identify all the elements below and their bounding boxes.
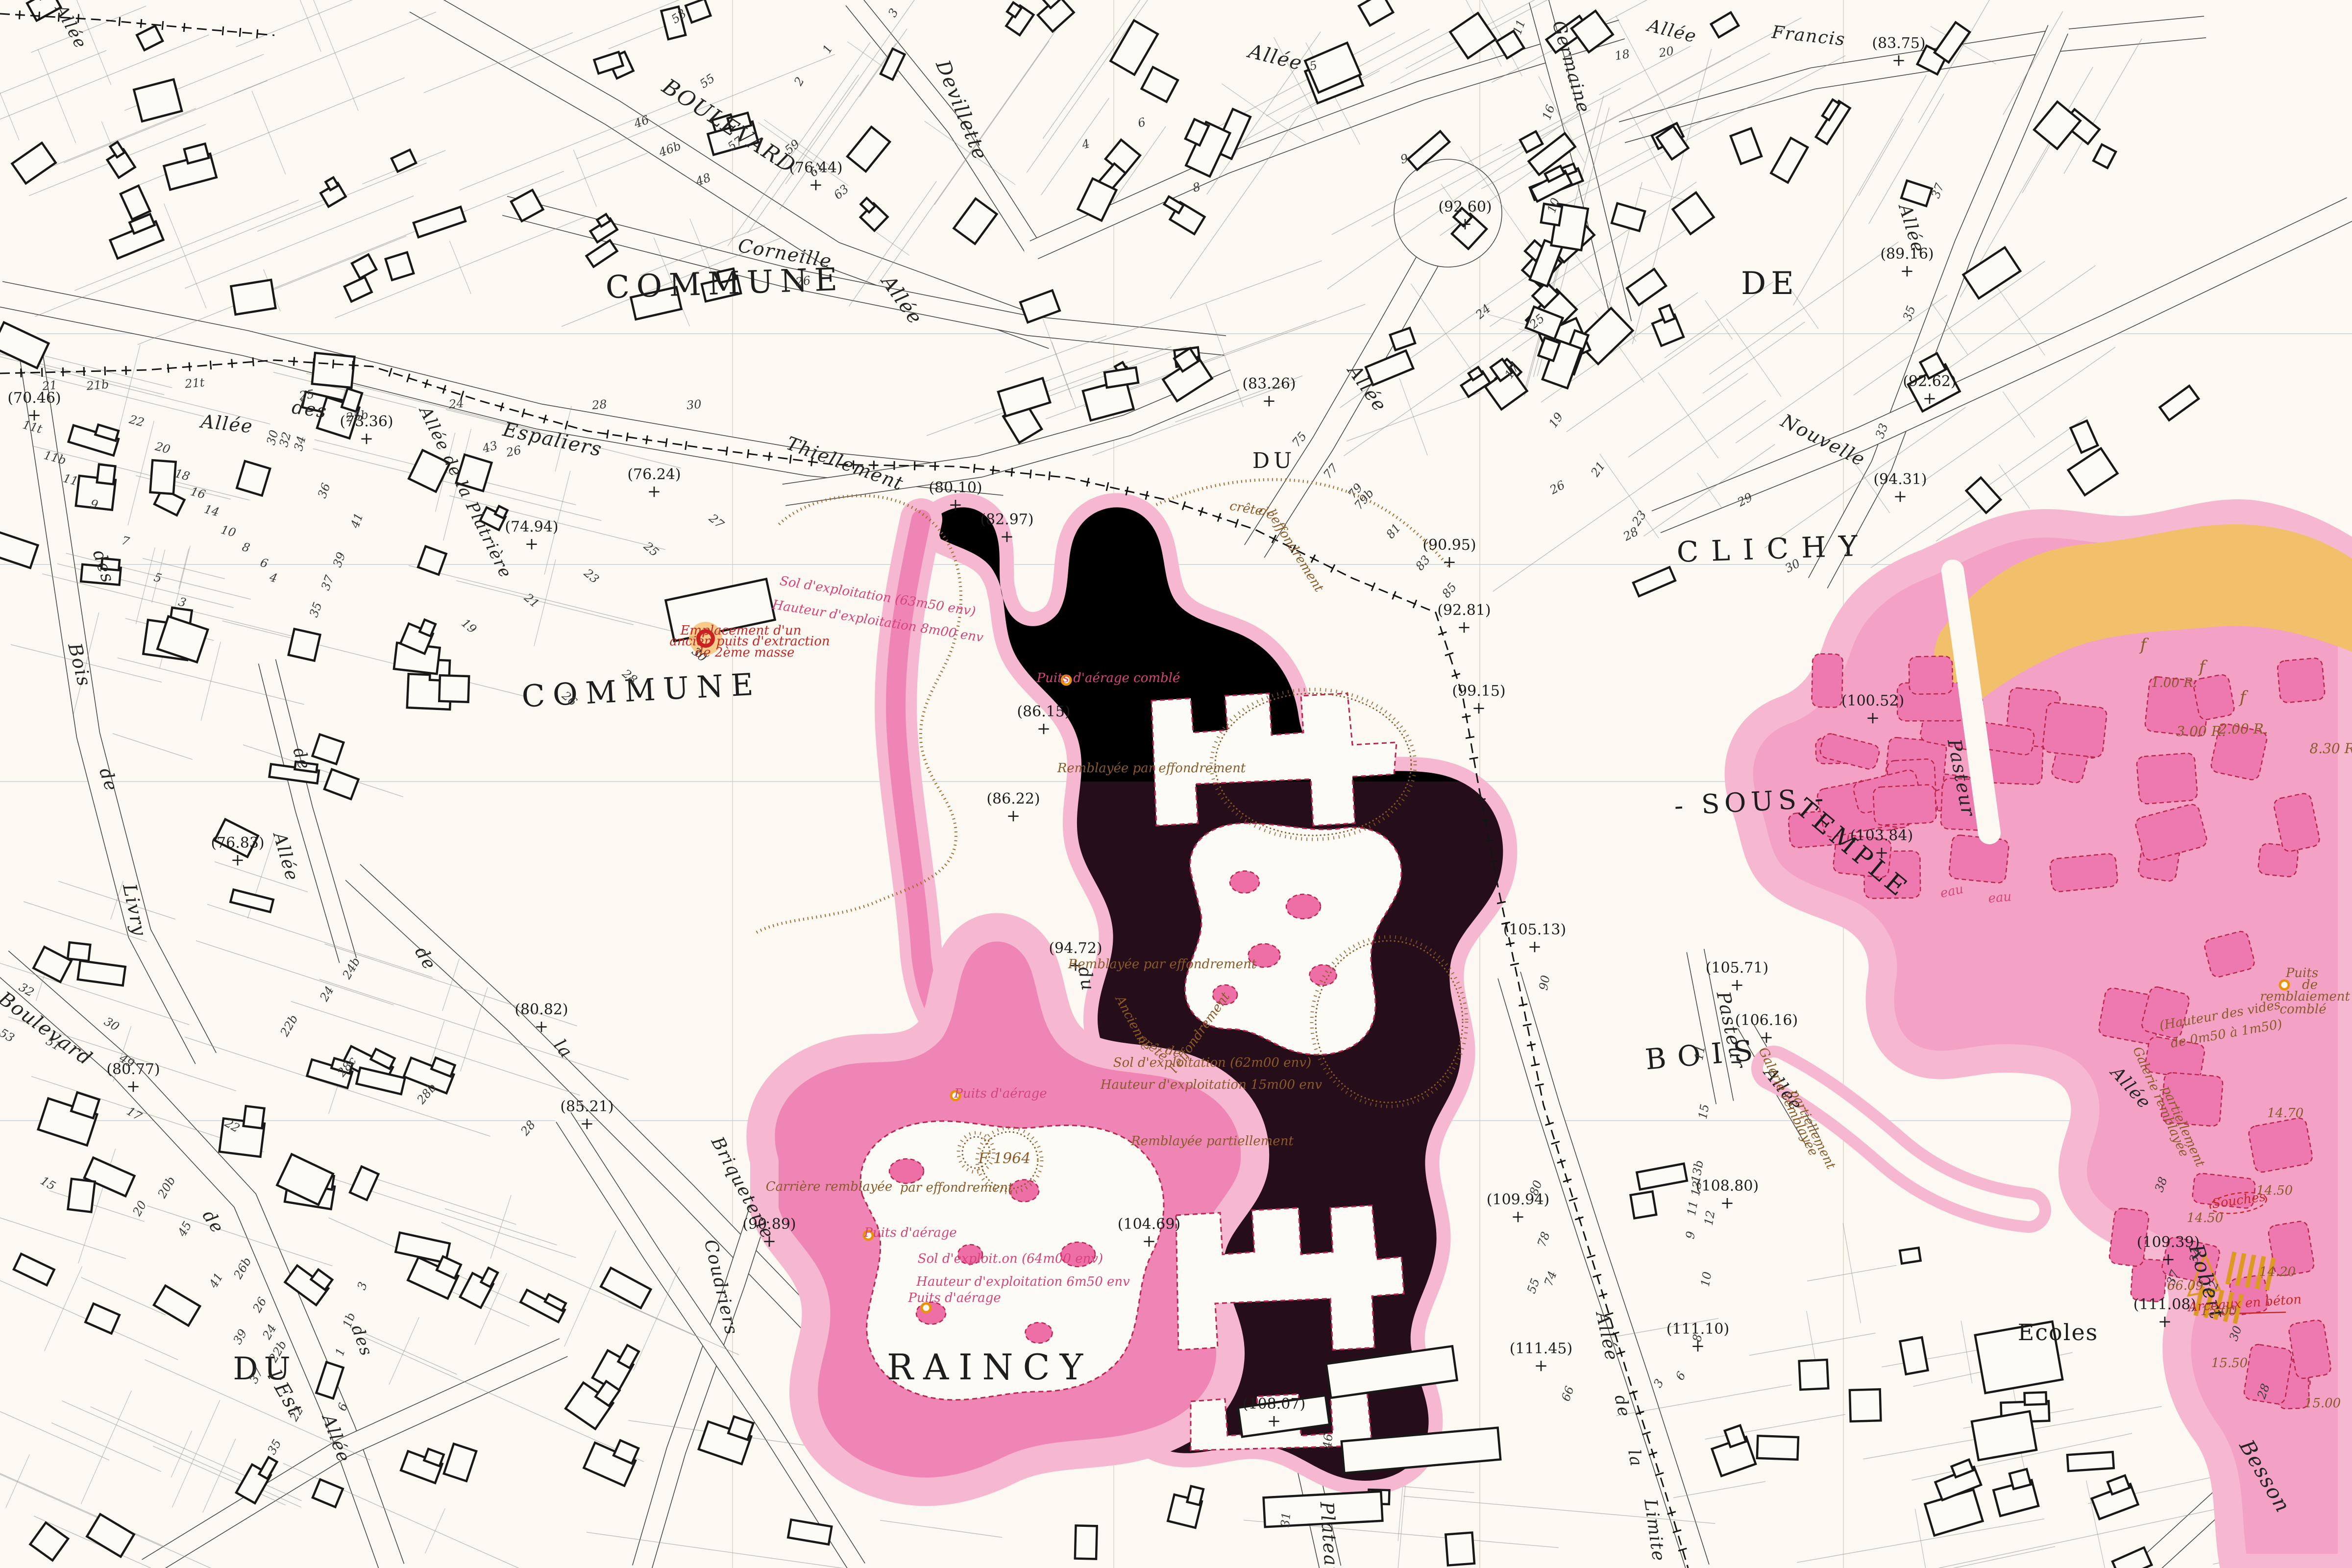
elevation-cross: + <box>1760 1028 1774 1047</box>
quarry-annotation-pink: Puits d'aérage <box>907 1291 1001 1305</box>
parcel-number: 20 <box>1657 44 1675 60</box>
elevation-cross: + <box>1892 50 1906 70</box>
elevation-cross: + <box>1457 617 1471 637</box>
elevation-value: (103.84) <box>1850 827 1913 844</box>
toponym-label: RAINCY <box>887 1347 1093 1388</box>
quarry-annotation-sepia: 1.00 R. <box>2151 676 2197 690</box>
elevation-cross: + <box>1900 261 1914 281</box>
quarry-annotation-pink: Puits d'aérage comblé <box>1036 671 1180 686</box>
quarry-annotation-sepia: 14.20 <box>2259 1265 2296 1279</box>
elevation-cross: + <box>1443 552 1457 572</box>
elevation-value: (82.97) <box>980 511 1033 528</box>
elevation-value: (83.26) <box>1242 375 1296 392</box>
elevation-value: (108.80) <box>1696 1177 1759 1195</box>
elevation-cross: + <box>525 534 539 554</box>
elevation-cross: + <box>1528 937 1542 956</box>
quarry-annotation-sepia: 15.00 <box>2201 1304 2237 1319</box>
parcel-number: 18 <box>1614 47 1631 63</box>
toponym-label: Ecoles <box>2018 1319 2099 1346</box>
elevation-cross: + <box>231 850 245 870</box>
quarry-annotation-sepia: 15.00 <box>2304 1396 2341 1411</box>
elevation-cross: + <box>2158 1312 2172 1331</box>
elevation-cross: + <box>1472 698 1486 718</box>
elevation-cross: + <box>1923 389 1937 408</box>
elevation-value: (85.21) <box>560 1098 613 1115</box>
elevation-value: (105.13) <box>1503 921 1566 938</box>
toponym-label: DE <box>1741 266 1799 302</box>
quarry-annotation-sepia: 14.70 <box>2267 1106 2303 1121</box>
quarry-annotation-pink: Puits d'aérage <box>954 1086 1047 1101</box>
elevation-cross: + <box>126 1077 141 1096</box>
air-well-icon <box>2280 980 2289 989</box>
parcel-number: 13 <box>1689 1180 1705 1197</box>
elevation-value: (89.16) <box>1880 245 1934 263</box>
parcel-number: 26 <box>794 273 811 289</box>
quarry-annotation-red: de 2ème masse <box>695 645 795 660</box>
elevation-value: (111.08) <box>2133 1296 2196 1313</box>
elevation-cross: + <box>949 495 963 514</box>
elevation-cross: + <box>647 482 661 501</box>
elevation-value: (92.62) <box>1903 373 1956 390</box>
elevation-cross: + <box>1511 1207 1525 1226</box>
toponym-label: DU <box>1252 448 1296 473</box>
parcel-number: 28 <box>591 397 608 413</box>
quarry-annotation-sepia: par effondrement <box>900 1180 1013 1195</box>
elevation-value: (86.22) <box>986 790 1040 808</box>
quarry-annotation-sepia: 15.50 <box>2211 1356 2248 1371</box>
parcel-number: 11 <box>1685 1200 1701 1217</box>
parcel-number: 21b <box>85 377 109 393</box>
elevation-cross: + <box>1142 1231 1156 1251</box>
quarry-annotation-sepia: 14.50 <box>2256 1183 2293 1198</box>
parcel-number: 10 <box>1698 1271 1715 1288</box>
elevation-value: (74.94) <box>505 518 558 536</box>
elevation-value: (80.82) <box>514 1001 568 1018</box>
elevation-cross: + <box>535 1017 549 1036</box>
elevation-cross: + <box>1262 391 1276 411</box>
elevation-cross: + <box>1720 1193 1735 1213</box>
quarry-annotation-sepia: Hauteur d'exploitation 15m00 env <box>1100 1078 1323 1092</box>
quarry-annotation-pink: Sol d'exploit.on (64m00 env) <box>918 1251 1103 1266</box>
quarry-annotation-pink: Hauteur d'exploitation 6m50 env <box>916 1274 1130 1289</box>
elevation-cross: + <box>1730 975 1744 995</box>
quarry-annotation-sepia: 14.50 <box>2187 1211 2223 1225</box>
elevation-cross: + <box>580 1114 594 1133</box>
elevation-value: (76.24) <box>627 466 681 483</box>
quarry-annotation-sepia: F 1964 <box>978 1150 1031 1167</box>
quarry-annotation-sepia: Carrière remblayée <box>766 1179 892 1194</box>
quarry-annotation-pink: eau <box>1987 889 2012 906</box>
parcel-number: 25 <box>298 387 315 403</box>
elevation-value: (104.69) <box>1118 1216 1180 1233</box>
parcel-number: 31 <box>1278 1512 1294 1528</box>
parcel-number: 24 <box>448 396 465 412</box>
quarry-annotation-pink: Puits d'aérage <box>863 1225 956 1240</box>
parcel-number: 21t <box>184 375 205 391</box>
quarry-annotation-sepia: 2.00 R. <box>2218 721 2268 737</box>
elevation-value: (111.45) <box>1510 1340 1572 1357</box>
elevation-cross: + <box>1000 527 1014 546</box>
parcel-number: 11 <box>1692 1044 1708 1061</box>
parcel-number: 46 <box>1321 1433 1336 1450</box>
elevation-cross: + <box>1458 214 1472 234</box>
parcel-number: 12 <box>1702 1209 1718 1226</box>
quarry-annotation-sepia: Sol d'exploitation (62m00 env) <box>1113 1055 1311 1070</box>
elevation-value: (94.31) <box>1873 471 1927 488</box>
elevation-cross: + <box>762 1231 777 1251</box>
elevation-cross: + <box>1006 806 1021 826</box>
elevation-value: (92.60) <box>1438 198 1492 216</box>
elevation-cross: + <box>1037 719 1051 738</box>
scanned-quarry-map: COMMUNEDECLICHY- SOUS -TEMPLEBOISCOMMUNE… <box>0 0 2352 1568</box>
map-canvas: COMMUNEDECLICHY- SOUS -TEMPLEBOISCOMMUNE… <box>0 0 2352 1568</box>
quarry-annotation-sepia: 8.30 R. <box>2309 740 2352 757</box>
elevation-value: (106.16) <box>1735 1012 1798 1029</box>
elevation-cross: + <box>1875 843 1889 862</box>
elevation-value: (90.95) <box>1422 537 1476 554</box>
elevation-value: (83.75) <box>1872 35 1925 52</box>
elevation-cross: + <box>1893 487 1908 506</box>
parcel-number: 15 <box>1696 1103 1712 1120</box>
elevation-cross: + <box>360 429 374 448</box>
toponym-label: CLICHY <box>1676 529 1871 569</box>
street-name-label: la <box>1624 1448 1646 1469</box>
elevation-value: (80.10) <box>929 479 982 496</box>
elevation-value: (100.52) <box>1841 692 1904 710</box>
parcel-number: 30 <box>686 397 702 413</box>
elevation-cross: + <box>1267 1411 1281 1431</box>
parcel-number: 21 <box>41 378 58 393</box>
elevation-cross: + <box>1866 708 1880 728</box>
parcel-number: 90 <box>1537 974 1553 991</box>
elevation-value: (90.89) <box>742 1216 796 1233</box>
elevation-value: (86.15) <box>1017 703 1070 720</box>
elevation-value: (76.83) <box>211 834 264 852</box>
elevation-value: (94.72) <box>1049 940 1102 957</box>
elevation-cross: + <box>1534 1356 1548 1375</box>
quarry-annotation-sepia: Remblayée partiellement <box>1130 1134 1294 1149</box>
quarry-annotation-sepia: Remblayée par effondrement <box>1068 957 1257 972</box>
quarry-annotation-sepia: Remblayée par effondrement <box>1057 761 1246 776</box>
quarry-annotation-sepia: comblé <box>2279 1002 2326 1017</box>
elevation-value: (92.81) <box>1437 602 1491 619</box>
elevation-value: (105.71) <box>1706 959 1768 977</box>
elevation-cross: + <box>2161 1249 2176 1269</box>
elevation-value: (108.07) <box>1243 1396 1305 1413</box>
elevation-value: (99.15) <box>1452 683 1505 700</box>
